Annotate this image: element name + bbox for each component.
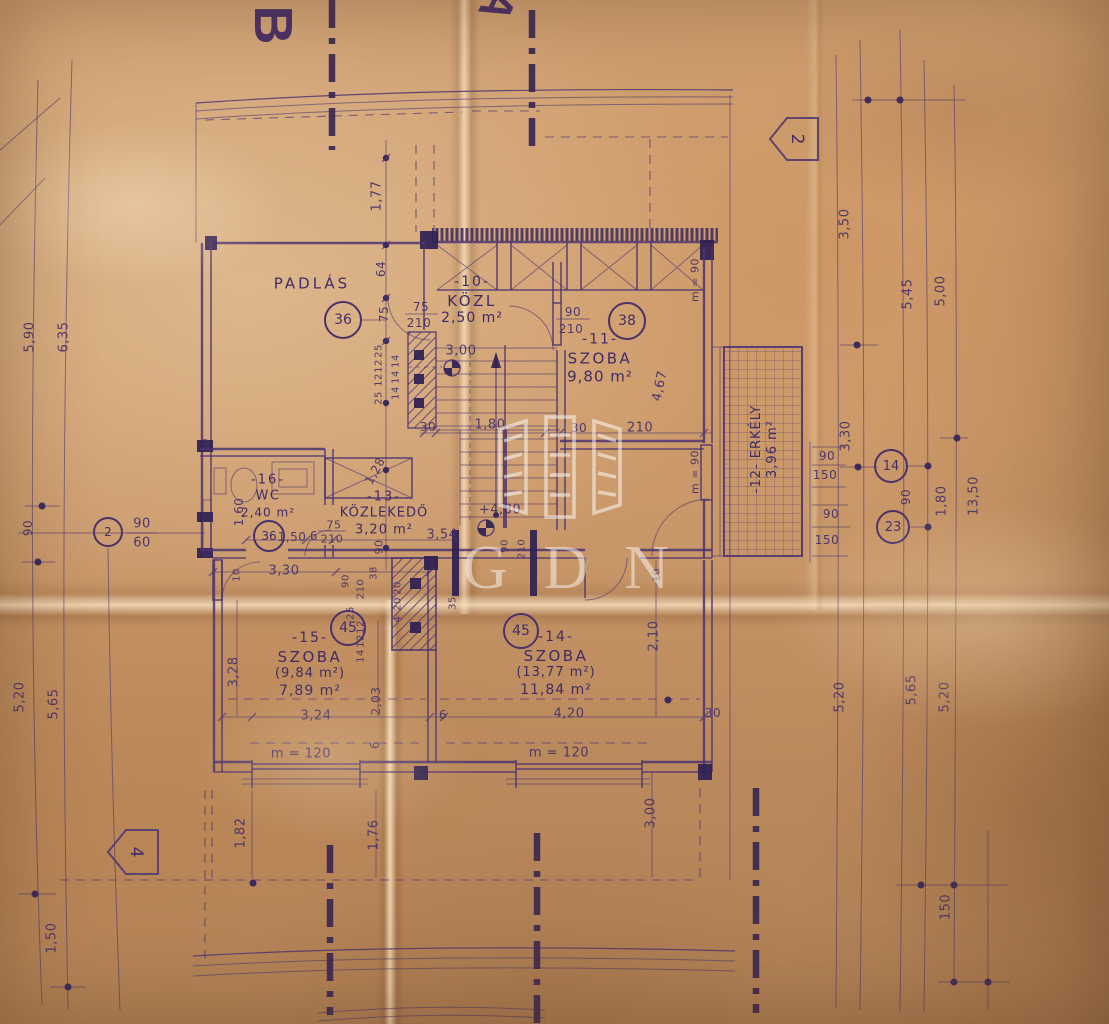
dim-label: 5,45 [901, 279, 916, 310]
room-area-gross: (9,84 m²) [275, 666, 345, 682]
dim-label: 5,65 [905, 675, 920, 706]
room-label-kozlekedo: -13- KÖZLEKEDŐ 3,20 m² [340, 490, 428, 539]
room-area: 11,84 m² [516, 682, 595, 700]
dim-label: m = 120 [529, 746, 589, 761]
room-label-erkely: -12- ERKÉLY 3,96 m² [745, 405, 782, 493]
room-number: -14- [516, 629, 595, 647]
right-dim-lines [810, 30, 1010, 1012]
room-name: SZOBA [516, 647, 595, 666]
watermark-logo-icon [430, 415, 720, 530]
dim-label: 14 [391, 370, 402, 384]
dim-label: 5,20 [13, 682, 28, 713]
pentagon-marker-2: 2 [787, 134, 807, 145]
grid-circle-14: 14 [874, 449, 908, 483]
dim-label: 3,50 [838, 209, 853, 240]
dim-label: 1,28 [362, 455, 388, 487]
dim-label: 14 [356, 649, 367, 663]
dim-label: 1,77 [370, 181, 385, 212]
dim-label: 1,82 [234, 818, 249, 849]
dim-label: 4,20 [554, 707, 585, 722]
dim-label: 25 [374, 391, 385, 405]
dim-label: 60 [133, 536, 151, 551]
dim-label: 150 [939, 894, 954, 920]
dim-label: 25 [374, 344, 385, 358]
dim-label: 3,30 [839, 421, 854, 452]
room-label-padlas: PADLÁS [274, 275, 350, 294]
dim-label: 6,35 [57, 322, 72, 353]
room-area-gross: (13,77 m²) [516, 665, 595, 681]
room-name: PADLÁS [274, 275, 350, 294]
fold-crease-vertical-bottom [377, 600, 404, 1024]
room-name: SZOBA [275, 648, 345, 667]
dim-label: 90 [373, 540, 386, 555]
dim-label: 3,28 [227, 657, 242, 688]
grid-circle-23: 23 [876, 510, 910, 544]
dim-label: 5,65 [47, 689, 62, 720]
room-number: -11- [567, 332, 633, 350]
dim-label: 90 [899, 489, 913, 505]
dim-label: 30 [705, 706, 721, 720]
watermark-text: GDN [445, 537, 705, 599]
dim-label: 75 [413, 300, 429, 314]
dim-label: 210 [321, 533, 344, 546]
dim-label: 10 [201, 438, 212, 452]
room-area: 3,96 m² [765, 405, 781, 493]
fold-crease-right [806, 0, 824, 610]
room-area: 2,40 m² [241, 505, 295, 520]
dim-label: 210 [407, 316, 431, 330]
dim-label: 1,80 [935, 486, 950, 517]
room-label-szoba-11: -11- SZOBA 9,80 m² [567, 332, 633, 387]
dim-label: 90 [565, 305, 581, 319]
room-name: WC [241, 489, 295, 505]
room-label-szoba-14: -14- SZOBA (13,77 m²) 11,84 m² [516, 629, 595, 699]
bottom-eave-lines [193, 948, 735, 1021]
room-number: -16- [241, 472, 295, 488]
room-name: SZOBA [567, 349, 633, 368]
room-area: 3,20 m² [340, 522, 428, 538]
dim-label: 210 [559, 322, 583, 336]
dim-label: 38 [369, 566, 380, 580]
balcony-erkely [712, 347, 802, 556]
sheet-letter-b: B [242, 6, 304, 45]
dim-label: 4,67 [649, 369, 670, 402]
dim-label: m = 120 [271, 747, 331, 762]
wc-and-shaft [200, 449, 412, 557]
dim-label: 90 [133, 517, 151, 532]
room-number: -13- [340, 490, 428, 506]
dim-label: 3,30 [269, 564, 300, 579]
room-name: KÖZLEKEDŐ [340, 506, 428, 522]
dim-label: 1,60 [232, 498, 246, 527]
dim-label: 12 [356, 634, 367, 648]
room-number: -15- [275, 630, 345, 648]
dim-label: 64 [374, 261, 388, 277]
room-area: 7,89 m² [275, 683, 345, 701]
dim-label: 1,50 [278, 530, 307, 544]
room-name: ERKÉLY [749, 405, 764, 458]
dim-label: 75 [327, 519, 342, 532]
dim-label: 12 [374, 359, 385, 373]
dim-label: m = 90 [689, 258, 702, 302]
left-dim-lines [0, 60, 205, 1010]
room-number: -12- [749, 463, 764, 493]
dim-label: 6 [310, 529, 318, 543]
dim-label: 90 [21, 520, 35, 536]
watermark: GDN [430, 415, 720, 580]
room-label-szoba-15: -15- SZOBA (9,84 m²) 7,89 m² [275, 630, 345, 700]
pentagon-marker-4: 4 [126, 847, 146, 858]
dim-label: 75 [377, 306, 391, 322]
dim-label: 6 [439, 708, 447, 722]
dim-label: 3,24 [301, 709, 332, 724]
dim-label: 3,00 [644, 798, 659, 829]
dim-label: 14 [391, 386, 402, 400]
dim-label: 1,50 [45, 923, 60, 954]
dim-label: 5,20 [833, 682, 848, 713]
dim-label: 5,90 [23, 322, 38, 353]
room-area: 9,80 m² [567, 368, 633, 387]
room-label-wc: -16- WC 2,40 m² [241, 472, 295, 520]
blueprint-photo: B A PADLÁS -10- KÖZL 2,50 m² -11- SZOBA … [0, 0, 1109, 1024]
dim-label: 12 [374, 373, 385, 387]
dim-label: 13,50 [967, 476, 982, 516]
grid-circle-36b: 36 [253, 520, 285, 552]
grid-circle-2: 2 [93, 517, 123, 547]
dim-label: 5,00 [934, 276, 949, 307]
dim-label: 14 [391, 354, 402, 368]
grid-circle-36: 36 [324, 301, 362, 339]
dim-label: 90 [823, 507, 839, 521]
grid-circle-38: 38 [608, 302, 646, 340]
dim-label: 5,20 [938, 682, 953, 713]
